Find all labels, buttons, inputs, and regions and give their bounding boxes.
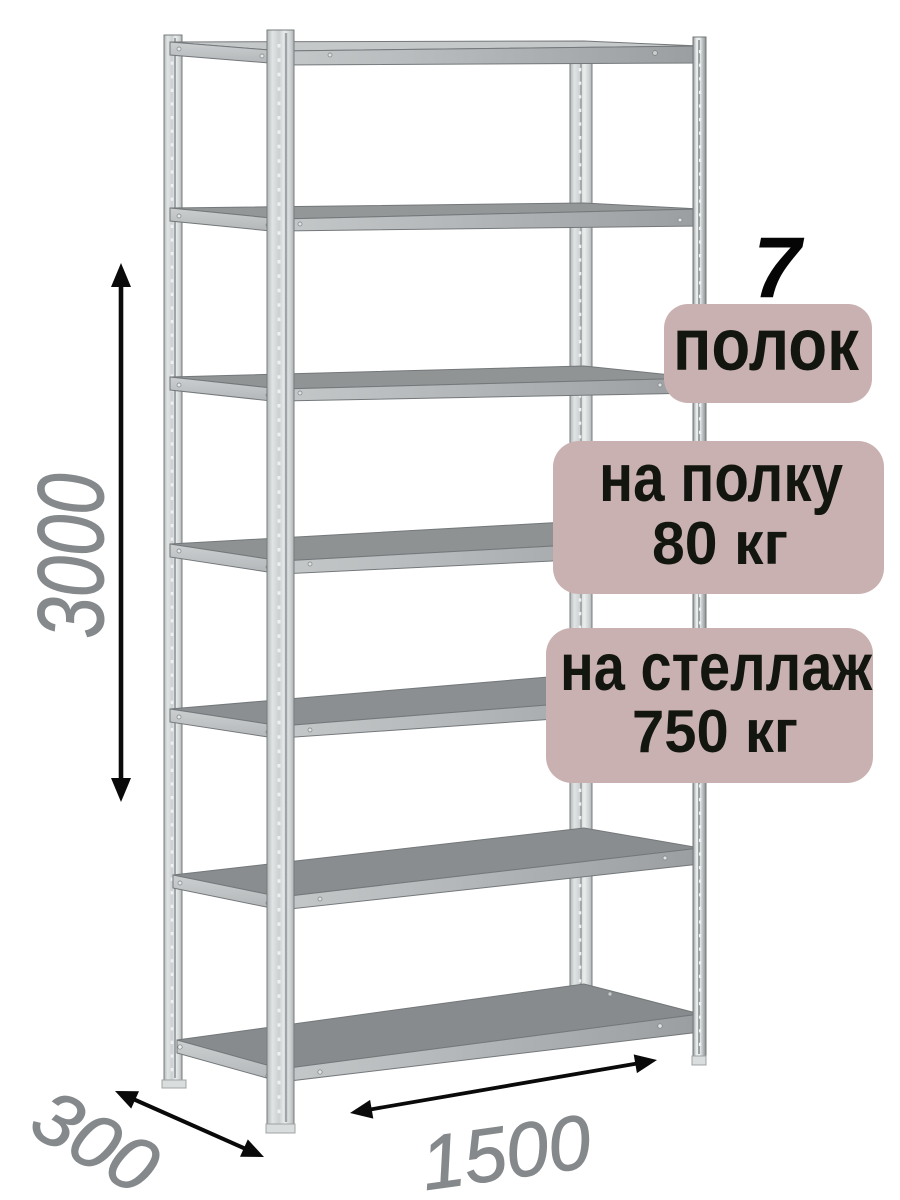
svg-text:80 кг: 80 кг (652, 510, 788, 577)
svg-text:300: 300 (17, 1073, 172, 1200)
svg-text:полок: полок (673, 303, 860, 386)
svg-text:1500: 1500 (416, 1099, 596, 1200)
svg-text:750 кг: 750 кг (632, 698, 798, 765)
svg-text:на полку: на полку (599, 440, 843, 516)
svg-text:3000: 3000 (18, 474, 123, 639)
svg-text:7: 7 (753, 220, 805, 316)
svg-text:на стеллаж: на стеллаж (560, 630, 873, 705)
